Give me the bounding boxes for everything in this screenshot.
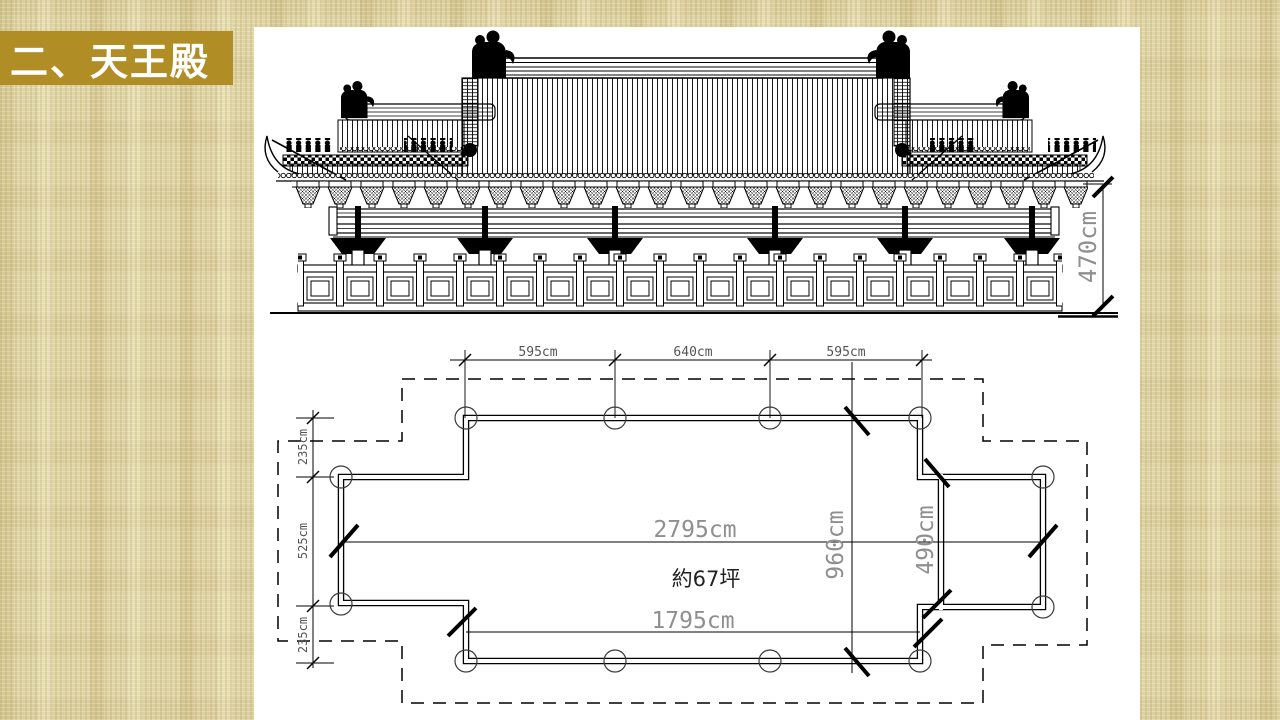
plan-top-dimension-chain: 595cm 640cm 595cm (450, 345, 932, 418)
dougong-bracket-row (292, 181, 1088, 208)
slide: { "slide": { "title": "二、天王殿" }, "colors… (0, 0, 1280, 720)
ridge-animals (404, 138, 452, 152)
slide-title: 二、天王殿 (10, 31, 210, 86)
beam-structure (329, 207, 1059, 237)
dim-label-left-middle: 525cm (296, 523, 310, 559)
dim-label-annex-depth: 490cm (913, 505, 939, 574)
dim-label-main-depth: 960cm (823, 510, 849, 579)
ridge-animals (1048, 138, 1096, 152)
dim-label-overall-width: 2795cm (653, 517, 736, 543)
ridge-animals (930, 138, 978, 152)
plan-area-label: 約67坪 (672, 567, 741, 591)
dim-label-left-top: 235cm (296, 429, 310, 465)
dim-label-top-left: 595cm (518, 345, 557, 360)
dim-label-elevation-height: 470cm (1074, 211, 1102, 283)
dim-label-inner-width: 1795cm (651, 608, 734, 634)
architectural-drawings: 470cm 595cm 640cm (0, 0, 1280, 720)
elevation-drawing: 470cm (265, 31, 1118, 317)
dim-label-top-center: 640cm (673, 345, 712, 360)
floor-plan: 595cm 640cm 595cm 235cm 525cm 235cm (278, 345, 1087, 703)
main-roof (460, 31, 912, 175)
slide-title-banner: 二、天王殿 (0, 31, 233, 85)
dim-label-left-bottom: 235cm (296, 617, 310, 653)
dim-label-top-right: 595cm (826, 345, 865, 360)
balustrade (270, 250, 1118, 317)
plan-left-dimension-chain: 235cm 525cm 235cm (296, 410, 334, 669)
ridge-animals (286, 138, 334, 152)
